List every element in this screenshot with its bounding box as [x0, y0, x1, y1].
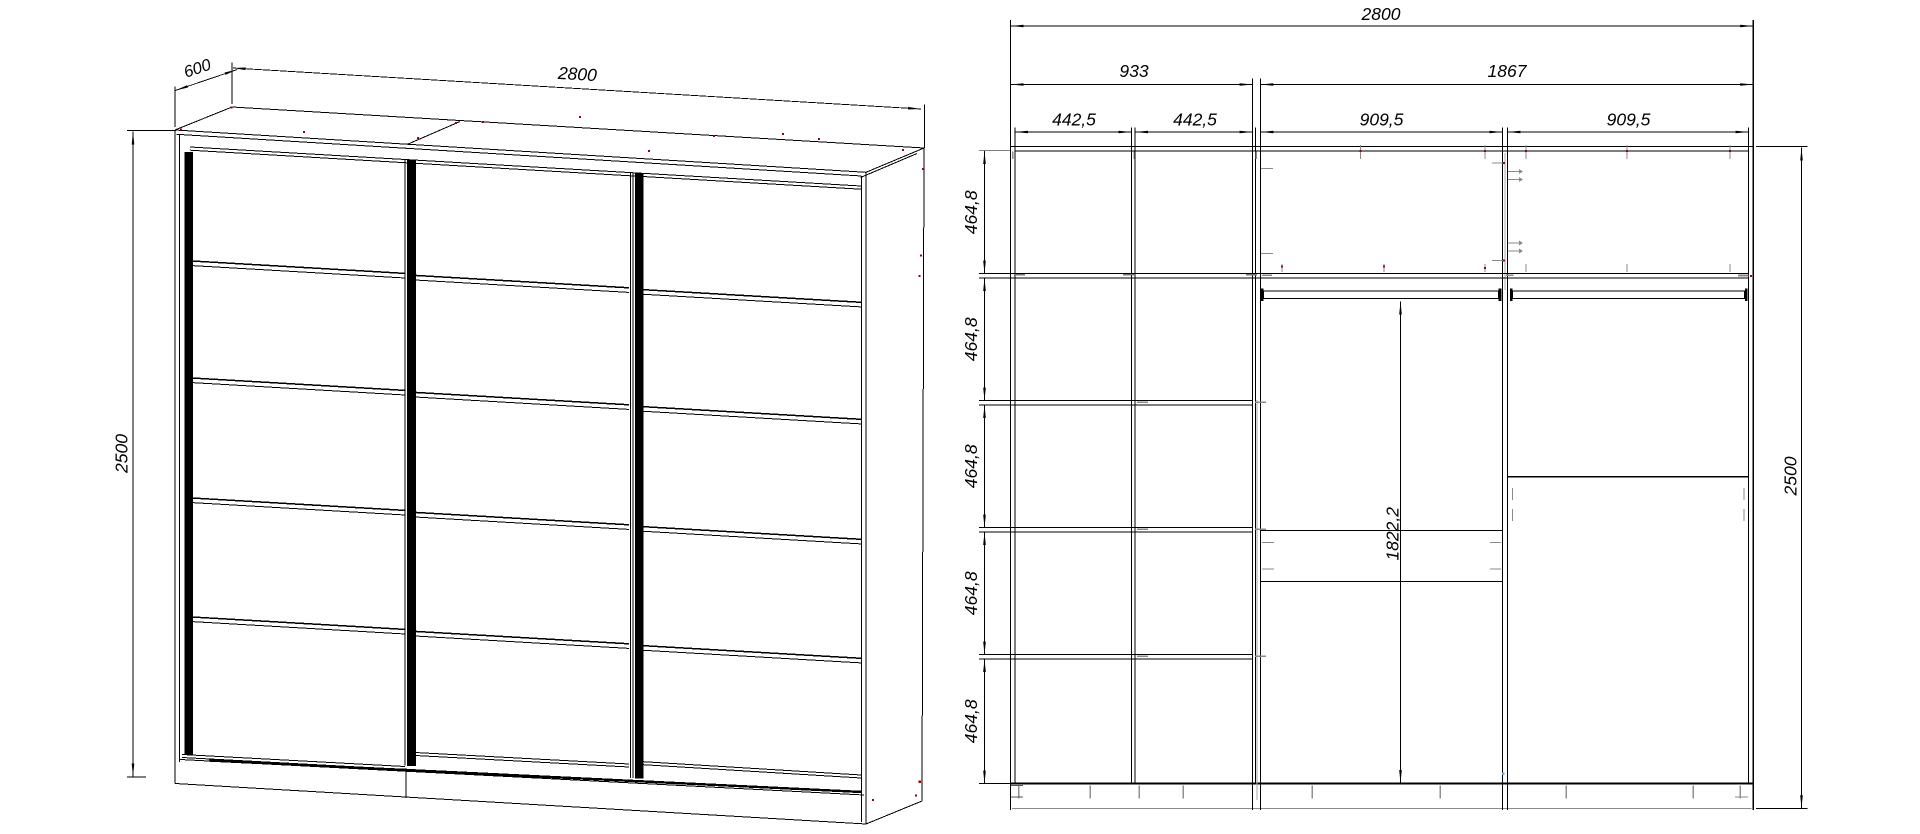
svg-text:909,5: 909,5: [1360, 110, 1404, 130]
svg-text:464,8: 464,8: [961, 571, 981, 615]
svg-text:2500: 2500: [1781, 456, 1801, 496]
svg-text:464,8: 464,8: [961, 444, 981, 488]
svg-text:464,8: 464,8: [961, 317, 981, 361]
svg-text:909,5: 909,5: [1607, 110, 1651, 130]
svg-text:2800: 2800: [556, 63, 597, 85]
svg-text:442,5: 442,5: [1052, 110, 1096, 130]
svg-text:464,8: 464,8: [961, 190, 981, 234]
svg-text:464,8: 464,8: [961, 699, 981, 743]
svg-text:1822,2: 1822,2: [1383, 507, 1403, 561]
svg-text:1867: 1867: [1488, 61, 1528, 81]
svg-text:2500: 2500: [111, 434, 131, 474]
svg-text:442,5: 442,5: [1173, 110, 1217, 130]
svg-text:2800: 2800: [1361, 4, 1401, 24]
svg-text:933: 933: [1119, 61, 1148, 81]
